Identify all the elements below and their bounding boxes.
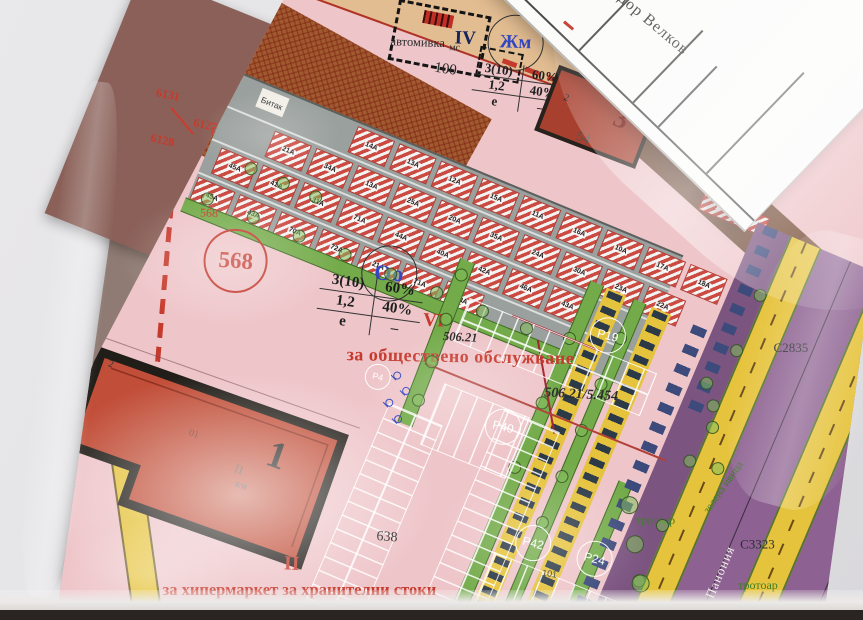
purpose-public-services: за обществено обслужване — [304, 344, 616, 368]
parking-bay: 14А — [347, 126, 395, 167]
parking-bay: 13А — [389, 143, 437, 184]
plot-number-638: 638 — [376, 530, 398, 546]
plot-number-6128: 6128 — [149, 132, 175, 149]
number-100: 100 — [433, 61, 457, 80]
p24-label: Р24 — [583, 549, 607, 568]
lamp-icon — [393, 371, 402, 380]
p40-label: Р40 — [491, 417, 515, 436]
block-iv-label: IV — [454, 28, 476, 49]
parking-bay: 12А — [431, 161, 479, 202]
p4-label: Р4 — [371, 371, 384, 383]
cadastre-point-c2835: С2835 — [774, 341, 809, 355]
area-506-21: 506.21 — [443, 330, 478, 345]
p19-label: Р19 — [596, 326, 620, 345]
parking-bay: 10А — [597, 229, 645, 270]
building-1: 1 2 01 II 638 — [49, 343, 354, 575]
parking-bay: 17А — [638, 247, 686, 288]
street-name-velkov: дор Велков — [614, 0, 691, 59]
plot-number-6131: 6131 — [155, 86, 181, 103]
parking-bay: 18А — [680, 264, 728, 305]
parking-bay: 16А — [555, 212, 603, 253]
building-1-shape — [49, 343, 354, 575]
parking-bay: 15А — [472, 178, 520, 219]
plot-number-6127: 6127 — [192, 116, 218, 133]
parking-count-p4: Р4 — [362, 361, 394, 393]
number-101: 101 — [541, 569, 557, 580]
plot-568-label: 568 — [217, 247, 253, 275]
plot-ii-label: II — [284, 553, 300, 575]
p42-label: Р42 — [521, 534, 545, 553]
plot-568-small: 568 — [200, 206, 218, 219]
cadastre-point-c3323: С3323 — [740, 538, 775, 552]
parking-bay: 11А — [514, 195, 562, 236]
cadastral-tick — [706, 72, 804, 174]
sleeve-bottom-edge — [0, 590, 863, 612]
building-3-sub: 2 — [562, 93, 570, 105]
cadastral-tick — [658, 66, 717, 127]
photo-of-zoning-maps: 6131 6127 6128 14А13А12А15А11А16А10А17А1… — [0, 0, 863, 620]
bitak-label: Битак — [260, 95, 285, 113]
red-arrow-line — [171, 107, 194, 134]
zone-zhm-label: Жм — [499, 31, 531, 54]
red-mark — [563, 21, 574, 31]
table-edge-dark — [0, 610, 863, 620]
